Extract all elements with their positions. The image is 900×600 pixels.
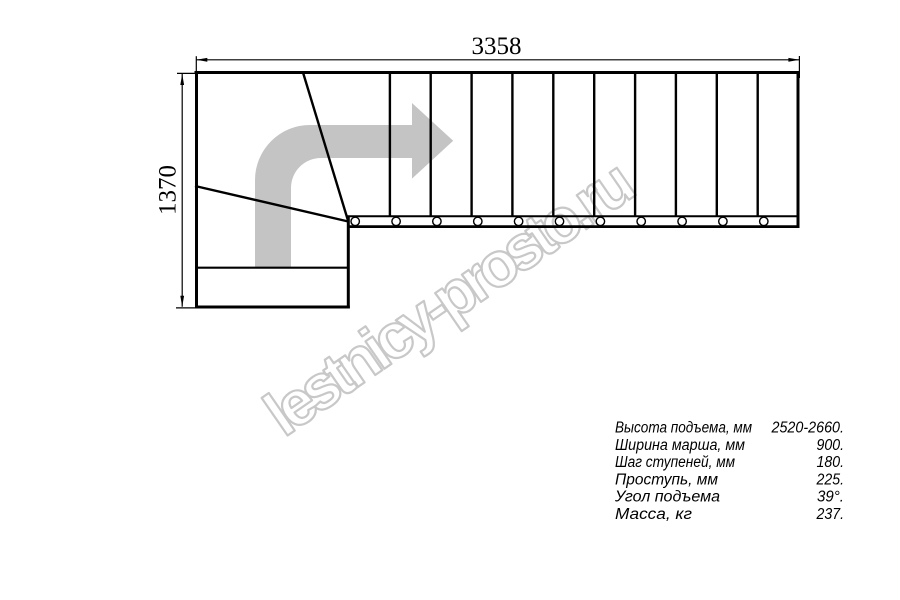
svg-text:180.: 180. xyxy=(817,454,845,471)
svg-text:Угол подъема: Угол подъема xyxy=(614,489,720,506)
svg-text:39°.: 39°. xyxy=(817,489,844,506)
svg-text:225.: 225. xyxy=(816,471,844,488)
svg-text:1370: 1370 xyxy=(155,165,182,215)
svg-text:Высота подъема, мм: Высота подъема, мм xyxy=(615,420,752,437)
svg-text:237.: 237. xyxy=(816,506,844,523)
svg-text:2520-2660.: 2520-2660. xyxy=(771,420,844,437)
svg-text:Масса, кг: Масса, кг xyxy=(615,506,692,523)
svg-text:3358: 3358 xyxy=(472,33,522,60)
svg-text:Ширина марша, мм: Ширина марша, мм xyxy=(615,437,745,454)
svg-text:Проступь, мм: Проступь, мм xyxy=(615,471,718,488)
svg-text:900.: 900. xyxy=(817,437,845,454)
svg-text:Шаг ступеней, мм: Шаг ступеней, мм xyxy=(615,454,735,471)
